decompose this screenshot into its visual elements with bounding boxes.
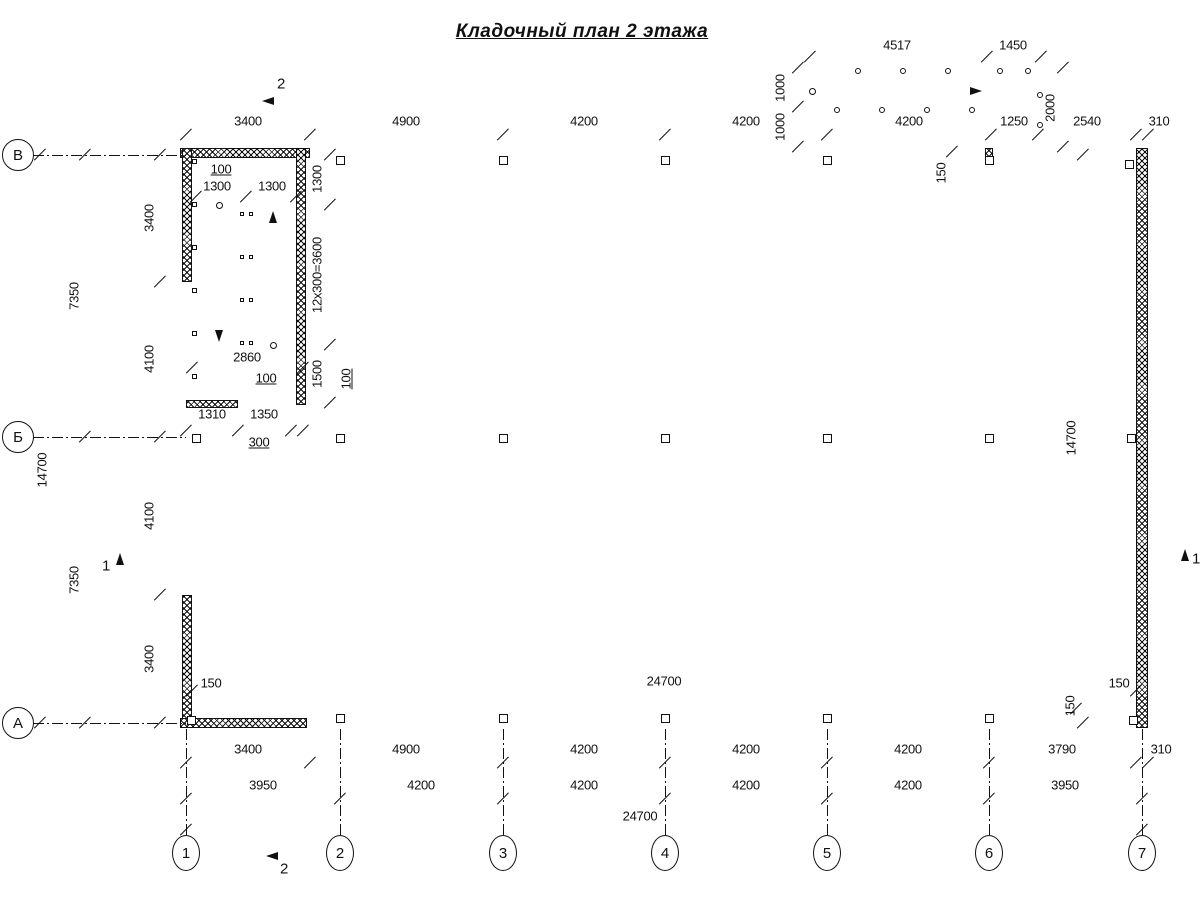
dim-label: 3400: [143, 204, 156, 232]
dim-tick: [232, 425, 244, 437]
railing-post-circle: [270, 342, 277, 349]
axis-circle: А: [2, 707, 34, 739]
dim-label: 3400: [143, 645, 156, 673]
column-square: [499, 714, 508, 723]
direction-arrowhead: [970, 87, 982, 95]
dim-label: 4200: [895, 115, 923, 128]
dim-label: 14700: [1065, 421, 1078, 456]
wall-hatch: [180, 148, 310, 158]
dim-tick: [285, 425, 297, 437]
dim-label: 7350: [68, 282, 81, 310]
axis-centerline: [665, 729, 666, 837]
section-mark-label: 1: [102, 560, 110, 573]
floor-plan-canvas: Кладочный план 2 этажа 45171450100010002…: [0, 0, 1200, 900]
wall-hatch: [182, 595, 192, 728]
railing-post-circle: [834, 107, 840, 113]
direction-arrowhead: [1181, 549, 1189, 561]
dim-label: 1000: [774, 113, 787, 141]
column-square: [249, 255, 253, 259]
dim-tick: [304, 757, 316, 769]
column-square: [240, 255, 244, 259]
column-square: [192, 245, 197, 250]
column-square: [192, 288, 197, 293]
axis-centerline: [989, 729, 990, 837]
dim-label: 4200: [732, 743, 760, 756]
dim-label: 150: [1064, 696, 1077, 717]
dim-tick: [946, 146, 958, 158]
dim-label: 4900: [392, 743, 420, 756]
wall-hatch: [182, 148, 192, 282]
column-square: [192, 202, 197, 207]
dim-tick: [304, 129, 316, 141]
dim-label: 310: [1151, 743, 1172, 756]
dim-tick: [154, 276, 166, 288]
direction-arrowhead: [266, 852, 278, 860]
leader-line: [309, 391, 343, 404]
section-mark-label: 1: [1192, 553, 1200, 566]
dim-tick: [792, 62, 804, 74]
dim-label: 4200: [732, 115, 760, 128]
axis-circle: 2: [326, 835, 354, 871]
dim-label: 100: [340, 369, 353, 390]
railing-post-circle: [216, 202, 223, 209]
dim-tick: [792, 101, 804, 113]
axis-circle: 5: [813, 835, 841, 871]
dim-label: 1450: [999, 39, 1027, 52]
railing-post-circle: [855, 68, 861, 74]
column-square: [499, 434, 508, 443]
column-square: [192, 159, 197, 164]
column-square: [823, 434, 832, 443]
column-square: [240, 212, 244, 216]
wall-hatch: [180, 718, 307, 728]
dim-label: 24700: [647, 675, 682, 688]
column-square: [985, 156, 994, 165]
railing-post-circle: [969, 107, 975, 113]
dim-label: 1250: [1000, 115, 1028, 128]
dim-tick: [1032, 129, 1044, 141]
dim-tick: [792, 141, 804, 153]
column-square: [192, 434, 201, 443]
dim-label: 1350: [250, 408, 278, 421]
column-square: [192, 331, 197, 336]
axis-circle: 1: [172, 835, 200, 871]
column-square: [336, 434, 345, 443]
column-square: [1125, 160, 1134, 169]
dim-label: 100: [211, 163, 232, 176]
dim-label: 4200: [570, 743, 598, 756]
dim-label: 4100: [143, 502, 156, 530]
drawing-title: Кладочный план 2 этажа: [456, 21, 708, 43]
dim-label: 300: [249, 436, 270, 449]
axis-centerline: [33, 155, 186, 156]
column-square: [823, 156, 832, 165]
column-square: [336, 714, 345, 723]
axis-centerline: [503, 729, 504, 837]
column-square: [661, 434, 670, 443]
dim-tick: [180, 425, 192, 437]
dim-label: 4200: [407, 779, 435, 792]
dim-label: 4200: [894, 779, 922, 792]
axis-circle: 7: [1128, 835, 1156, 871]
column-square: [249, 341, 253, 345]
axis-centerline: [186, 729, 187, 837]
dim-label: 1000: [774, 74, 787, 102]
column-square: [985, 434, 994, 443]
dim-tick: [1057, 62, 1069, 74]
railing-post-circle: [879, 107, 885, 113]
column-square: [187, 716, 196, 725]
dim-tick: [804, 51, 816, 63]
dim-tick: [1130, 129, 1142, 141]
dim-tick: [1057, 141, 1069, 153]
dim-label: 3400: [234, 115, 262, 128]
axis-circle: В: [2, 139, 34, 171]
dim-label: 1500: [311, 360, 324, 388]
dim-label: 1310: [198, 408, 226, 421]
dim-label: 4200: [570, 779, 598, 792]
column-square: [249, 298, 253, 302]
dim-label: 12x300=3600: [311, 237, 324, 313]
dim-label: 4200: [732, 779, 760, 792]
direction-arrowhead: [269, 211, 277, 223]
axis-centerline: [33, 723, 186, 724]
axis-centerline: [340, 729, 341, 837]
direction-arrowhead: [116, 553, 124, 565]
railing-post-circle: [945, 68, 951, 74]
dim-tick: [985, 129, 997, 141]
dim-tick: [497, 129, 509, 141]
column-square: [240, 341, 244, 345]
dim-label: 150: [201, 677, 222, 690]
dim-tick: [981, 51, 993, 63]
dim-label: 4100: [143, 345, 156, 373]
dim-tick: [297, 425, 309, 437]
column-square: [661, 714, 670, 723]
dim-tick: [821, 129, 833, 141]
dim-label: 7350: [68, 566, 81, 594]
axis-centerline: [1142, 729, 1143, 837]
dim-label: 2540: [1073, 115, 1101, 128]
column-square: [1127, 434, 1136, 443]
dim-tick: [180, 129, 192, 141]
dim-label: 4517: [883, 39, 911, 52]
dim-label: 3790: [1048, 743, 1076, 756]
dim-label: 24700: [623, 810, 658, 823]
column-square: [661, 156, 670, 165]
dim-tick: [154, 589, 166, 601]
dim-label: 3400: [234, 743, 262, 756]
axis-circle: 4: [651, 835, 679, 871]
dim-tick: [1077, 717, 1089, 729]
dim-label: 4200: [570, 115, 598, 128]
dim-label: 100: [256, 372, 277, 385]
railing-post-circle: [809, 88, 816, 95]
column-square: [249, 212, 253, 216]
column-square: [240, 298, 244, 302]
dim-tick: [186, 362, 198, 374]
dim-label: 310: [1149, 115, 1170, 128]
dim-label: 14700: [36, 453, 49, 488]
section-mark-label: 2: [280, 863, 288, 876]
section-mark-label: 2: [277, 78, 285, 91]
dim-tick: [1142, 757, 1154, 769]
column-square: [1129, 716, 1138, 725]
dim-label: 150: [1109, 677, 1130, 690]
dim-label: 2000: [1044, 94, 1057, 122]
railing-post-circle: [1025, 68, 1031, 74]
dim-tick: [659, 129, 671, 141]
dim-tick: [324, 339, 336, 351]
railing-post-circle: [997, 68, 1003, 74]
dim-tick: [1035, 51, 1047, 63]
direction-arrowhead: [215, 330, 223, 342]
dim-label: 1300: [311, 165, 324, 193]
dim-tick: [1077, 149, 1089, 161]
axis-circle: 6: [975, 835, 1003, 871]
direction-arrowhead: [262, 97, 274, 105]
axis-centerline: [33, 437, 186, 438]
dim-tick: [1130, 757, 1142, 769]
column-square: [823, 714, 832, 723]
dim-tick: [240, 191, 252, 203]
dim-label: 3950: [249, 779, 277, 792]
railing-post-circle: [924, 107, 930, 113]
column-square: [985, 714, 994, 723]
railing-post-circle: [1037, 122, 1043, 128]
railing-post-circle: [900, 68, 906, 74]
dim-label: 2860: [233, 351, 261, 364]
dim-label: 1300: [258, 180, 286, 193]
axis-circle: Б: [2, 421, 34, 453]
wall-hatch: [1136, 148, 1148, 728]
axis-circle: 3: [489, 835, 517, 871]
column-square: [499, 156, 508, 165]
dim-label: 4200: [894, 743, 922, 756]
dim-tick: [324, 397, 336, 409]
dim-tick: [324, 199, 336, 211]
dim-label: 3950: [1051, 779, 1079, 792]
dim-label: 1300: [203, 180, 231, 193]
dim-label: 150: [935, 163, 948, 184]
dim-tick: [324, 149, 336, 161]
dim-label: 4900: [392, 115, 420, 128]
dim-tick: [1142, 129, 1154, 141]
axis-centerline: [827, 729, 828, 837]
column-square: [336, 156, 345, 165]
column-square: [192, 374, 197, 379]
